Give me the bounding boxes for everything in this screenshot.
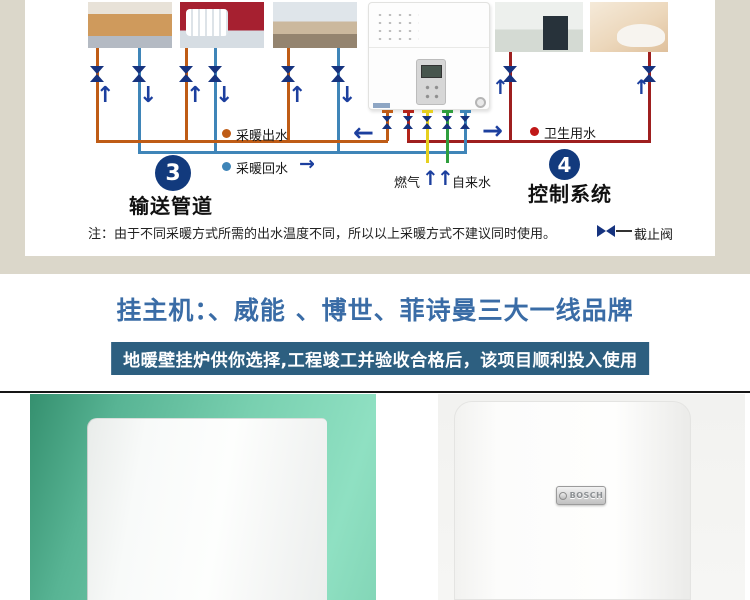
pipe-tick [460,110,471,113]
section-divider-rule [0,391,750,393]
boiler-brand-label [373,103,390,108]
heating-supply-label: 采暖出水 [236,125,288,144]
valve-icon [281,66,295,82]
step4-title: 控制系统 [528,178,612,207]
pipe-tick [442,110,453,113]
flow-down-arrow: ↓ [215,85,233,107]
living-room-photo [273,2,357,48]
step3-badge: 3 [155,155,191,191]
valve-icon [442,116,452,129]
valve-icon [382,116,392,129]
boiler-vent-grid [375,11,419,45]
flow-right-arrow: → [482,118,503,143]
bosch-boiler-photo: BOSCH [438,394,745,600]
brands-title: 挂主机：、威能 、博世、菲诗曼三大一线品牌 [0,291,750,327]
flow-up-arrow: ↑ [492,77,509,97]
bath-photo [590,2,668,52]
gas-label: 燃气 [394,172,420,191]
stop-valve-icon [606,225,615,237]
return-flow-arrow: → [299,155,315,174]
step4-number: 4 [558,153,572,177]
flow-left-arrow: ← [353,120,374,145]
sanitary-water-label: 卫生用水 [544,123,596,142]
step3-number: 3 [165,161,180,186]
heating-return-label: 采暖回水 [236,158,288,177]
flow-down-arrow: ↓ [139,85,157,107]
vaillant-boiler-body [87,418,327,600]
flow-down-arrow: ↓ [338,85,356,107]
bathtub-icon [617,24,665,47]
pipe-tick [422,110,433,113]
stop-valve-label: 截止阀 [634,224,673,243]
bosch-boiler-body: BOSCH [454,401,691,600]
sanitary-dot-icon [530,127,539,136]
valve-icon [460,116,470,129]
valve-icon [422,116,432,129]
bosch-logo-text: BOSCH [570,491,604,500]
boiler-sight-glass [475,97,486,108]
floor-heating-photo [88,2,172,48]
supply-dot-icon [222,129,231,138]
sanitary-water-manifold [407,140,651,143]
valve-icon [179,66,193,82]
boiler-lcd-display [421,65,442,78]
boiler-control-panel [416,59,446,105]
boiler-buttons [423,83,441,101]
radiator-photo [180,2,264,48]
valve-icon [331,66,345,82]
valve-icon [132,66,146,82]
flow-up-arrow: ↑ [186,85,204,107]
appliance-icon [543,16,568,50]
note-text: 注：由于不同采暖方式所需的出水温度不同，所以以上采暖方式不建议同时使用。 [88,223,556,242]
step3-title: 输送管道 [129,190,213,219]
bosch-logo-badge: BOSCH [556,486,606,505]
pipe-tick [403,110,414,113]
promo-banner: 地暖壁挂炉供你选择,工程竣工并验收合格后，该项目顺利投入使用 [111,342,649,375]
valve-icon [208,66,222,82]
legend-dash [616,230,632,232]
valve-icon [90,66,104,82]
flow-up-arrow: ↑ [96,85,114,107]
flow-up-arrow: ↑ [633,77,650,97]
return-dot-icon [222,162,231,171]
product-detail-page: ↑ ↓ ↑ ↓ ↑ ↓ ↑ ↑ ← → 采暖出水 采暖回水 → 卫生用水 燃气 … [0,0,750,600]
tap-water-label: 自来水 [452,172,491,191]
radiator-icon [186,9,228,36]
boiler-seam [369,47,489,48]
boiler-unit [368,2,490,110]
kitchen-photo [495,2,583,52]
step4-badge: 4 [549,149,580,180]
stop-valve-icon [597,225,606,237]
vaillant-boiler-photo [30,394,376,600]
bosch-emblem-icon [559,492,567,500]
valve-icon [403,116,413,129]
pipe-tick [382,110,393,113]
flow-up-arrow: ↑ [288,85,306,107]
